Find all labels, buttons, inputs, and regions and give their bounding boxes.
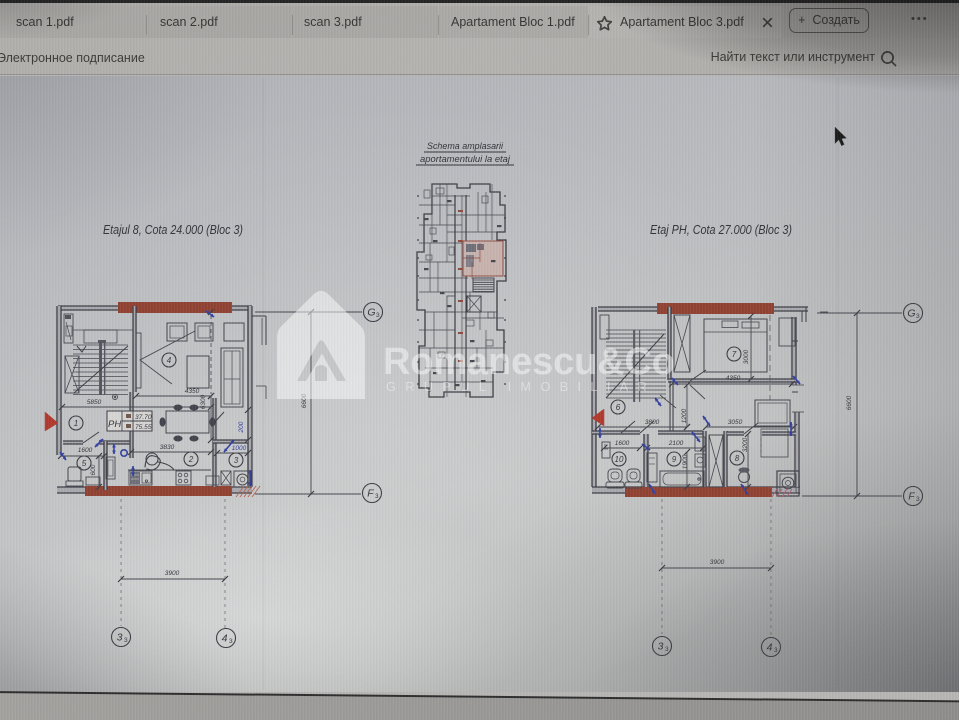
svg-text:3: 3 (229, 638, 233, 645)
svg-text:Etaj PH, Cota 27.000 (Bloc 3): Etaj PH, Cota 27.000 (Bloc 3) (650, 223, 792, 237)
svg-text:3: 3 (117, 632, 123, 644)
svg-text:3: 3 (658, 641, 664, 653)
svg-text:3: 3 (376, 312, 380, 319)
svg-text:F: F (367, 488, 374, 500)
svg-text:4: 4 (222, 633, 228, 645)
svg-text:4350: 4350 (726, 375, 741, 382)
svg-text:1900: 1900 (682, 454, 689, 469)
svg-text:1600: 1600 (78, 447, 93, 454)
svg-text:7: 7 (732, 350, 737, 359)
svg-text:5850: 5850 (87, 399, 102, 406)
svg-text:200: 200 (238, 421, 245, 433)
svg-text:F: F (908, 491, 915, 503)
svg-text:3800: 3800 (645, 419, 660, 426)
svg-text:3: 3 (774, 647, 778, 654)
svg-text:2100: 2100 (668, 440, 684, 447)
svg-text:6600: 6600 (846, 395, 853, 410)
svg-text:3: 3 (124, 637, 128, 644)
svg-text:3830: 3830 (160, 444, 175, 451)
svg-text:3: 3 (916, 496, 920, 503)
svg-text:3: 3 (916, 313, 920, 320)
svg-text:G: G (367, 307, 375, 319)
svg-text:600: 600 (90, 464, 97, 475)
svg-text:aportamentului la etaj: aportamentului la etaj (420, 154, 511, 165)
svg-text:3200: 3200 (742, 437, 749, 452)
svg-text:75.55: 75.55 (135, 424, 152, 431)
svg-text:8: 8 (735, 454, 740, 463)
svg-text:2: 2 (188, 455, 194, 464)
svg-text:3000: 3000 (743, 349, 750, 364)
svg-text:3: 3 (665, 646, 669, 653)
svg-text:4: 4 (767, 642, 773, 654)
svg-text:1: 1 (74, 419, 78, 428)
svg-text:1200: 1200 (681, 408, 688, 423)
svg-text:3: 3 (234, 456, 239, 465)
svg-text:3: 3 (375, 493, 379, 500)
svg-text:4: 4 (167, 356, 172, 365)
svg-text:4350: 4350 (185, 388, 200, 395)
svg-text:9: 9 (672, 455, 677, 464)
svg-text:Etajul 8, Cota 24.000 (Bloc 3): Etajul 8, Cota 24.000 (Bloc 3) (103, 223, 243, 237)
svg-text:37.70: 37.70 (135, 414, 152, 421)
svg-text:6: 6 (616, 403, 621, 412)
svg-text:10: 10 (615, 455, 624, 464)
svg-text:3900: 3900 (165, 570, 180, 577)
svg-text:Schema amplasarii: Schema amplasarii (427, 141, 504, 152)
svg-text:1000: 1000 (232, 445, 247, 452)
svg-text:1600: 1600 (615, 440, 630, 447)
svg-text:3900: 3900 (710, 559, 725, 566)
svg-text:Romanescu&Co: Romanescu&Co (383, 341, 675, 383)
svg-text:3050: 3050 (728, 419, 743, 426)
svg-text:G: G (907, 308, 915, 320)
svg-text:5: 5 (82, 459, 87, 468)
svg-text:6300: 6300 (200, 394, 207, 409)
svg-text:GRUPUL IMOBILIAR: GRUPUL IMOBILIAR (386, 379, 656, 394)
svg-text:PH: PH (108, 419, 121, 430)
